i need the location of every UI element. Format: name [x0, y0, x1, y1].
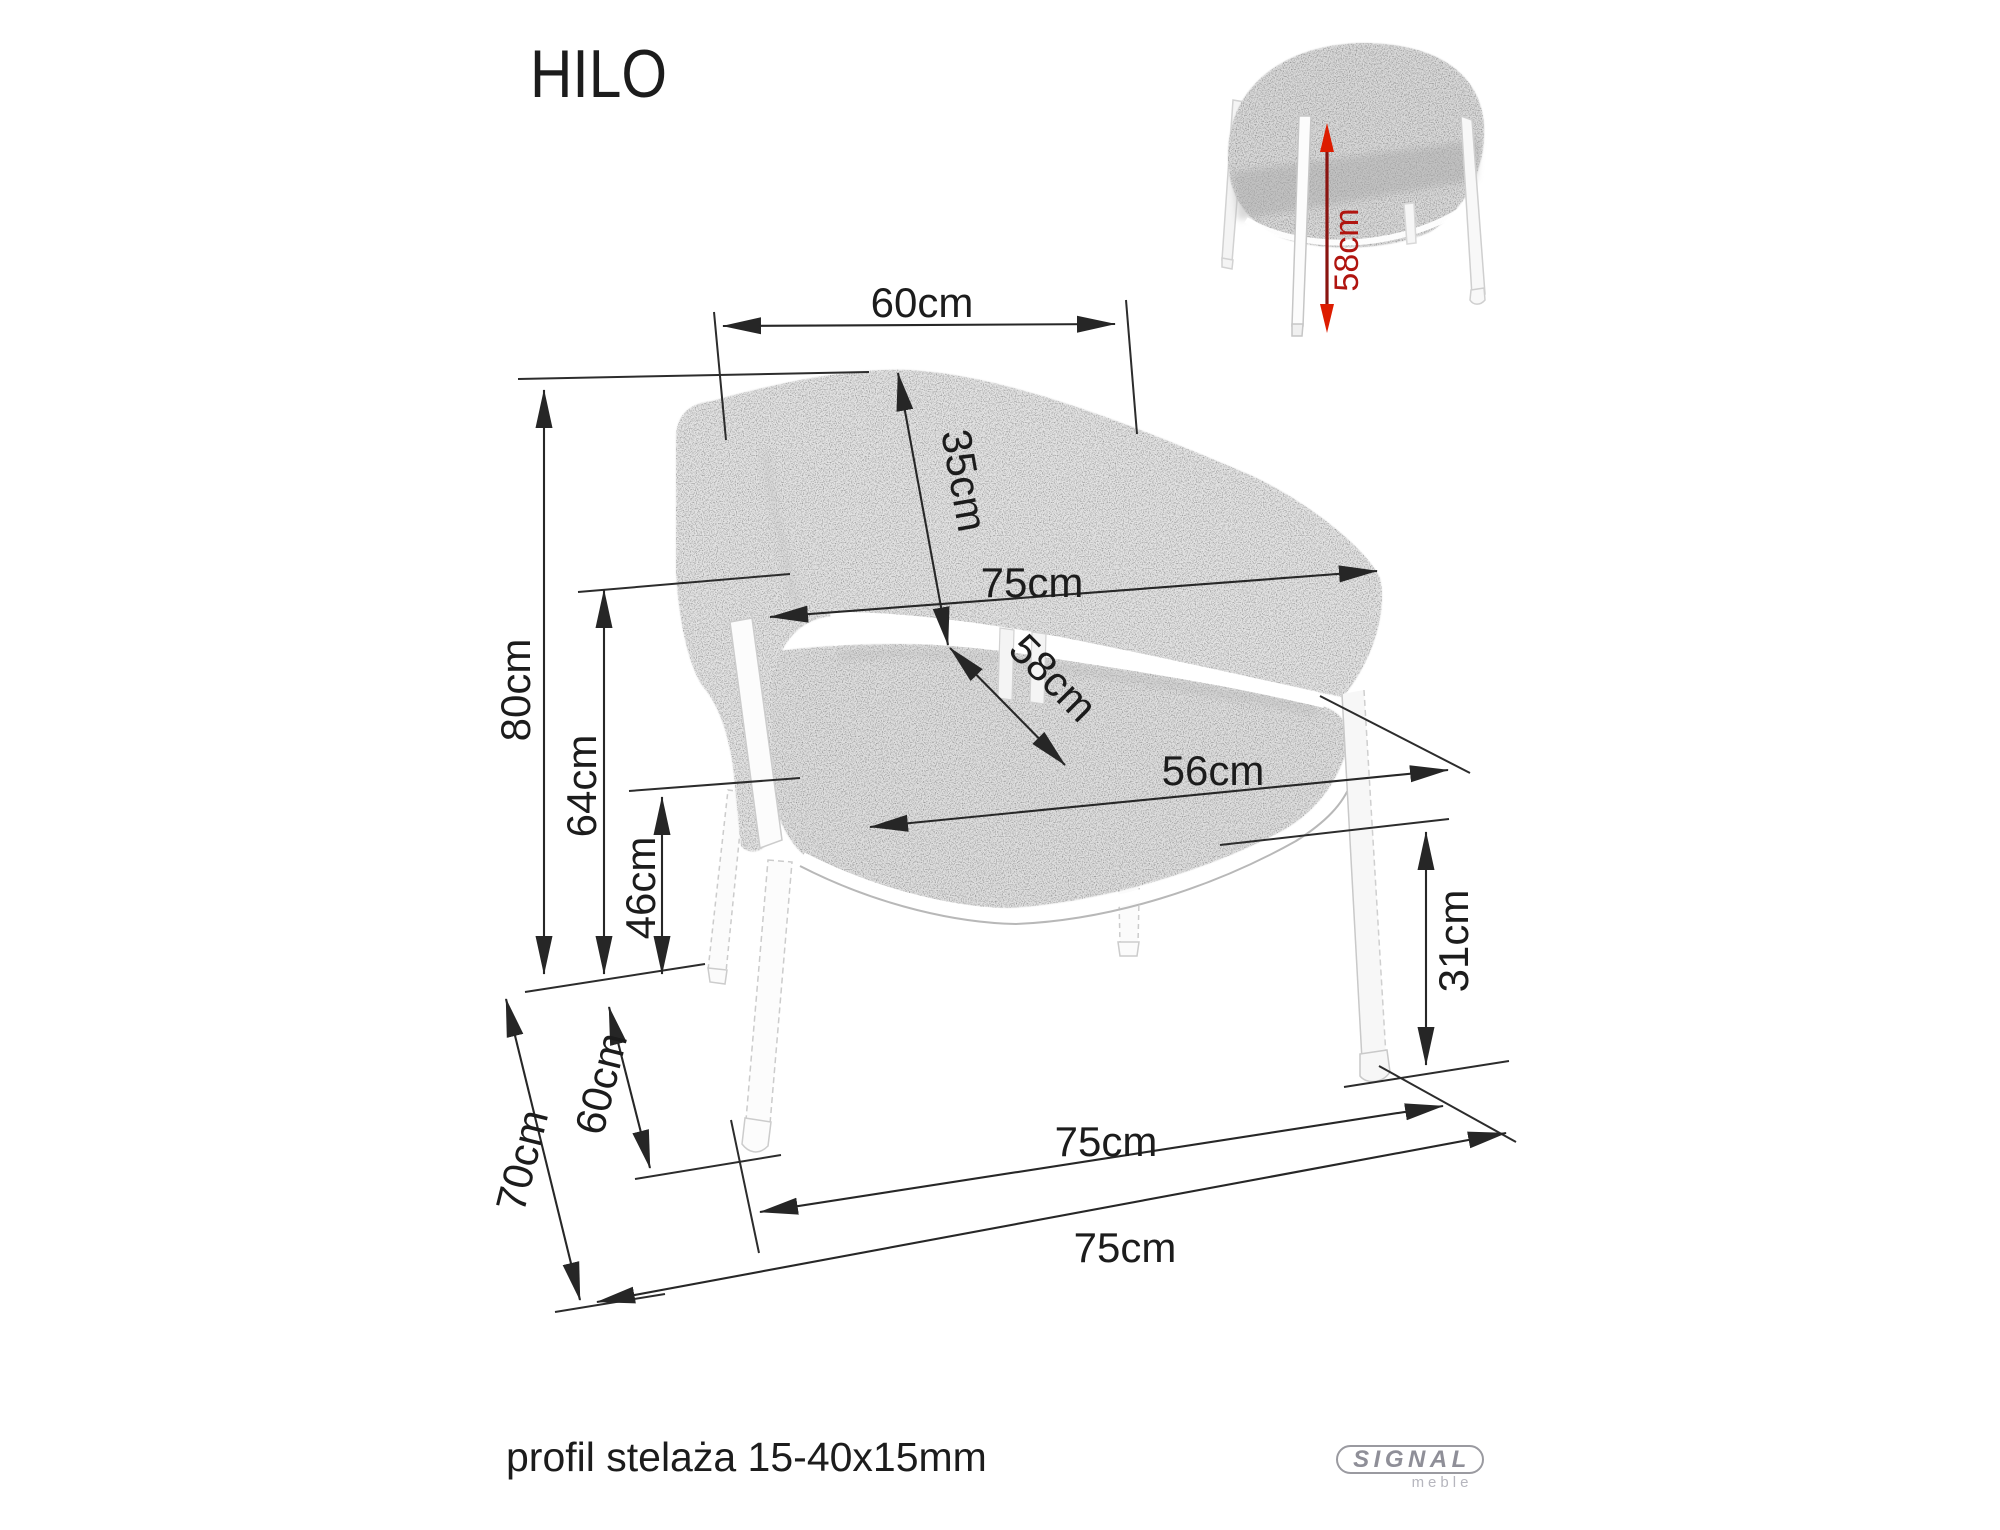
svg-text:profil stelaża 15-40x15mm: profil stelaża 15-40x15mm: [506, 1434, 987, 1480]
svg-text:60cm: 60cm: [871, 279, 974, 326]
svg-text:75cm: 75cm: [981, 559, 1084, 606]
svg-text:75cm: 75cm: [1055, 1118, 1158, 1165]
svg-text:80cm: 80cm: [492, 639, 539, 742]
svg-text:64cm: 64cm: [558, 735, 605, 838]
svg-text:meble: meble: [1412, 1474, 1473, 1491]
svg-text:HILO: HILO: [530, 36, 667, 112]
svg-text:SIGNAL: SIGNAL: [1353, 1446, 1471, 1473]
svg-text:31cm: 31cm: [1430, 890, 1477, 993]
svg-text:75cm: 75cm: [1074, 1224, 1177, 1271]
svg-text:46cm: 46cm: [617, 837, 664, 940]
svg-text:58cm: 58cm: [1328, 208, 1366, 291]
svg-text:56cm: 56cm: [1162, 747, 1265, 794]
